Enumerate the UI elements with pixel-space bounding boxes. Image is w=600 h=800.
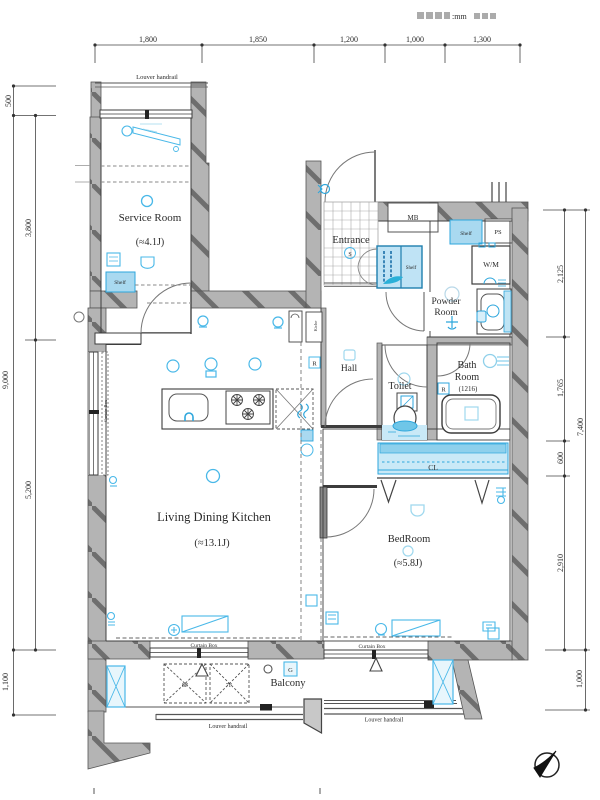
svg-text:Shelf: Shelf: [114, 279, 126, 286]
svg-text:1,000: 1,000: [575, 670, 584, 688]
svg-text:Toilet: Toilet: [388, 381, 411, 392]
svg-text:Curtain Box: Curtain Box: [190, 643, 217, 649]
svg-text:8F: 8F: [182, 683, 189, 689]
svg-text:Louver handrail: Louver handrail: [136, 74, 178, 81]
svg-text:Kiche: Kiche: [313, 321, 318, 332]
svg-text:1,765: 1,765: [556, 379, 565, 397]
svg-text:1,200: 1,200: [340, 35, 358, 44]
svg-text:1,800: 1,800: [139, 35, 157, 44]
svg-text:5,200: 5,200: [24, 481, 33, 499]
svg-text:2,910: 2,910: [556, 554, 565, 572]
svg-text:7,400: 7,400: [576, 418, 585, 436]
svg-text:600: 600: [556, 452, 565, 464]
svg-text:1,850: 1,850: [249, 35, 267, 44]
svg-text:(≈4.1J): (≈4.1J): [136, 237, 165, 248]
svg-text:Curtain Box: Curtain Box: [103, 399, 108, 422]
svg-text:R: R: [441, 387, 446, 394]
svg-text:3,800: 3,800: [24, 219, 33, 237]
svg-text:1,000: 1,000: [406, 35, 424, 44]
svg-text:PS: PS: [494, 229, 502, 236]
svg-text:Shelf: Shelf: [406, 266, 417, 271]
svg-text:Louver handrail: Louver handrail: [365, 718, 404, 724]
svg-text:Service Room: Service Room: [119, 212, 182, 224]
svg-text:R: R: [312, 361, 317, 368]
svg-text:Balcony: Balcony: [271, 678, 307, 689]
svg-text:W/M: W/M: [483, 260, 499, 269]
svg-text:Entrance: Entrance: [332, 235, 370, 246]
svg-text:G: G: [288, 667, 293, 674]
svg-text:(≈5.8J): (≈5.8J): [394, 558, 423, 569]
svg-text:Room: Room: [455, 372, 480, 383]
svg-text:9,000: 9,000: [1, 371, 10, 389]
svg-text:(≈13.1J): (≈13.1J): [194, 538, 230, 549]
svg-text:Powder: Powder: [431, 297, 461, 307]
svg-text:500: 500: [4, 95, 13, 107]
svg-text:Louver handrail: Louver handrail: [209, 724, 248, 730]
svg-text:2,125: 2,125: [556, 265, 565, 283]
svg-text:Living Dining Kitchen: Living Dining Kitchen: [157, 510, 272, 524]
svg-text:Hall: Hall: [341, 364, 358, 374]
svg-text:CL: CL: [428, 463, 438, 472]
svg-text:Room: Room: [434, 308, 458, 318]
svg-text:1,300: 1,300: [473, 35, 491, 44]
svg-text:1,100: 1,100: [1, 673, 10, 691]
svg-text:Curtain Box: Curtain Box: [358, 644, 385, 650]
svg-text:(1216): (1216): [459, 385, 478, 393]
svg-text:Shelf: Shelf: [460, 230, 472, 237]
svg-text:BedRoom: BedRoom: [388, 534, 431, 545]
svg-text:S: S: [348, 252, 351, 258]
svg-text::mm: :mm: [452, 12, 467, 21]
svg-text:7F: 7F: [226, 683, 233, 689]
svg-text:Bath: Bath: [458, 360, 477, 371]
